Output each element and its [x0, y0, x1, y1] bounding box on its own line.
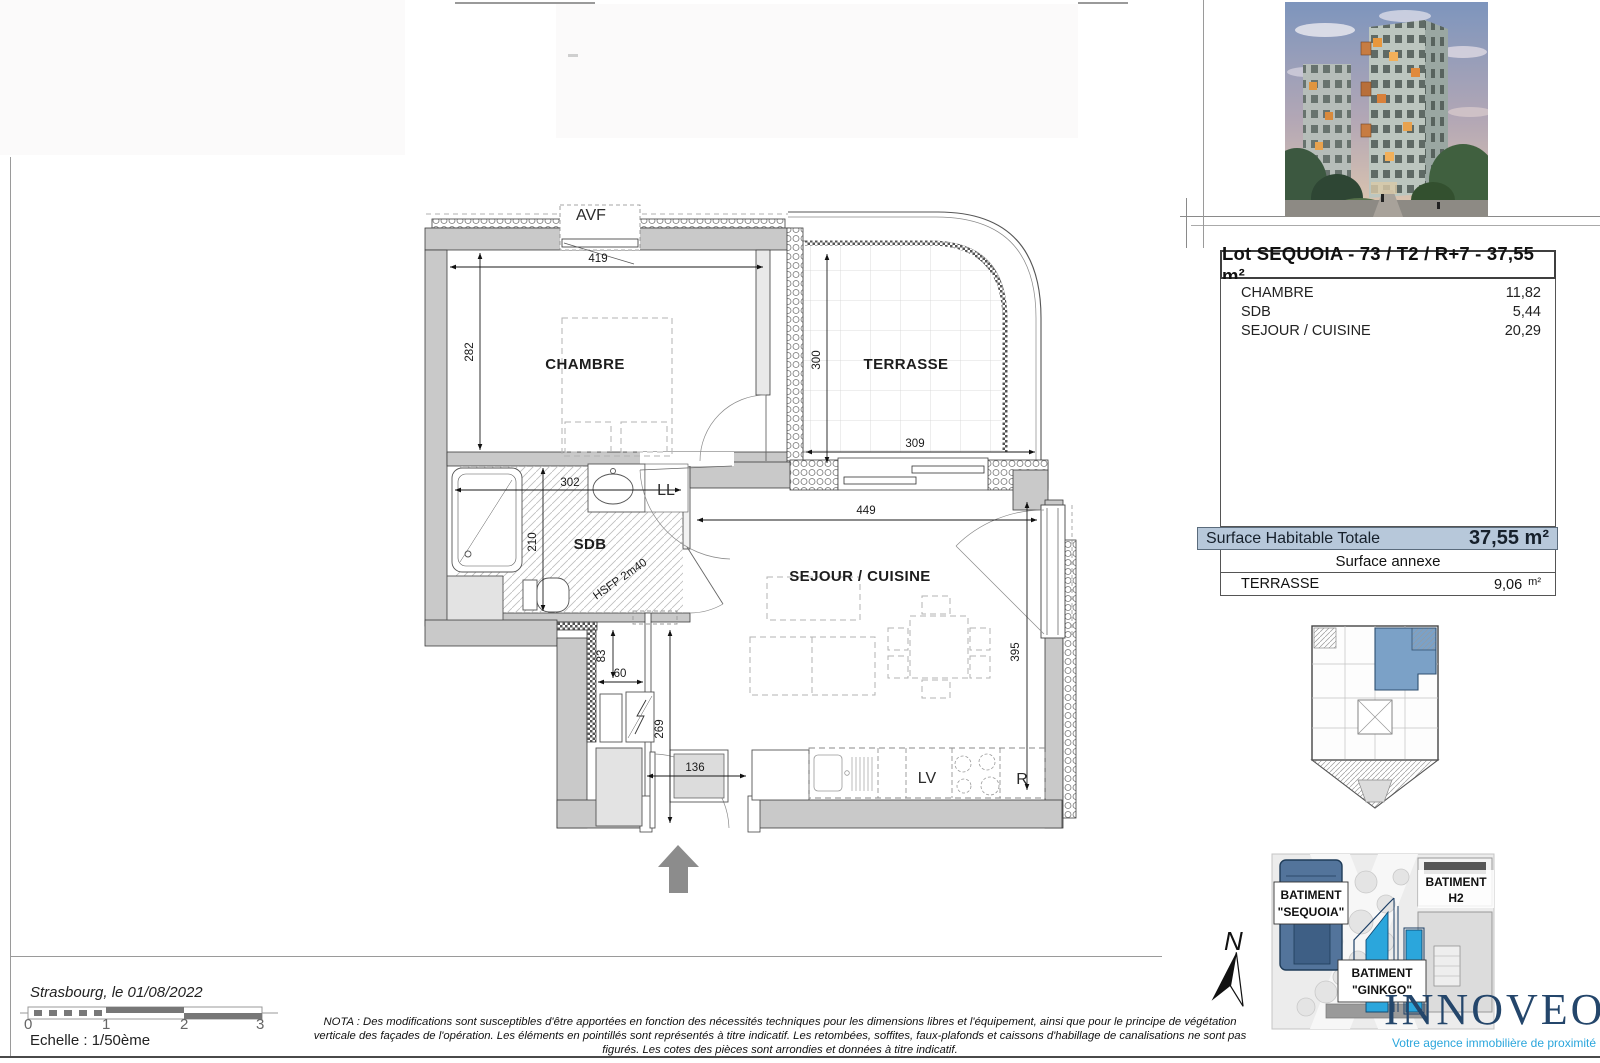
label-batiment-h2-1: BATIMENT	[1425, 875, 1487, 889]
scale-tick-1: 1	[102, 1016, 110, 1033]
label-batiment-h2-2: H2	[1448, 891, 1464, 905]
trim-line	[455, 2, 595, 4]
building-render-photo	[1285, 2, 1488, 217]
kitchen-sink	[814, 755, 842, 791]
room-name: CHAMBRE	[1241, 285, 1314, 301]
north-label: N	[1224, 926, 1243, 956]
date-line: Strasbourg, le 01/08/2022	[30, 984, 203, 1001]
dim-chambre-width: 419	[588, 253, 607, 265]
label-sdb: SDB	[574, 536, 607, 553]
trim-line	[1203, 0, 1204, 248]
label-chambre: CHAMBRE	[545, 356, 624, 373]
room-name: SDB	[1241, 304, 1271, 320]
room-area: 20,29	[1505, 323, 1541, 339]
vanity	[588, 464, 645, 512]
label-fridge: R	[1016, 771, 1028, 788]
total-label: Surface Habitable Totale	[1206, 530, 1380, 548]
dim-sejour-height: 395	[1010, 642, 1022, 661]
label-batiment-ginkgo-1: BATIMENT	[1351, 966, 1413, 980]
sheet-left-rule	[10, 157, 11, 1057]
innoveo-wordmark: INNOVEO	[1384, 984, 1600, 1035]
north-arrow: N	[1202, 922, 1262, 1017]
dim-hall-width: 60	[614, 668, 627, 680]
scale-tick-2: 2	[180, 1016, 188, 1033]
annex-terrasse-row: TERRASSE 9,06m²	[1220, 573, 1556, 596]
label-batiment-sequoia-2: "SEQUOIA"	[1278, 905, 1345, 919]
label-ll: LL	[657, 482, 675, 499]
dim-hall-depth: 83	[596, 650, 608, 663]
trim-line	[1078, 2, 1128, 4]
floor-keyplan	[1300, 612, 1450, 817]
avf-label: AVF	[576, 207, 606, 224]
hob	[955, 754, 999, 795]
scale-bar	[20, 1002, 280, 1024]
terrace-floor	[803, 241, 1007, 452]
sliding-door	[838, 458, 988, 490]
dim-sdb-width: 302	[560, 477, 579, 489]
total-surface-row: Surface Habitable Totale 37,55 m²	[1197, 527, 1558, 550]
dim-sdb-height: 210	[527, 532, 539, 551]
lot-room-list: CHAMBRE 11,82 SDB 5,44 SEJOUR / CUISINE …	[1220, 279, 1556, 527]
total-value: 37,55 m²	[1469, 527, 1549, 550]
floor-plan: AVF HSFP 2m40	[410, 180, 1110, 900]
lot-title: Lot SEQUOIA - 73 / T2 / R+7 - 37,55 m²	[1220, 250, 1556, 279]
technical-shaft	[596, 748, 642, 826]
sejour-window	[956, 505, 1072, 638]
room-area: 5,44	[1513, 304, 1541, 320]
scale-tick-0: 0	[24, 1016, 32, 1033]
dim-hall-height: 269	[654, 719, 666, 738]
dim-terrasse-width: 309	[905, 438, 924, 450]
label-lv: LV	[918, 770, 937, 787]
label-terrasse: TERRASSE	[864, 356, 949, 373]
technical-shaft	[447, 576, 503, 620]
dim-terrasse-height: 300	[811, 350, 823, 369]
room-area: 11,82	[1506, 285, 1541, 301]
table-row: SEJOUR / CUISINE 20,29	[1221, 321, 1555, 340]
innoveo-tagline: Votre agence immobilière de proximité	[1388, 1036, 1600, 1050]
entrance-arrow-icon	[658, 845, 699, 893]
plan-sheet: AVF HSFP 2m40	[0, 0, 1600, 1063]
room-name: SEJOUR / CUISINE	[1241, 323, 1371, 339]
dim-entry-width: 136	[685, 762, 704, 774]
scale-tick-3: 3	[256, 1016, 264, 1033]
dim-chambre-height: 282	[464, 342, 476, 361]
trim-line	[1191, 225, 1600, 226]
nota-text: NOTA : Des modifications sont susceptibl…	[302, 1016, 1258, 1057]
entry-door-leaf	[650, 752, 655, 828]
annex-header: Surface annexe	[1220, 550, 1556, 573]
table-row: CHAMBRE 11,82	[1221, 283, 1555, 302]
table-row: SDB 5,44	[1221, 302, 1555, 321]
kitchen	[670, 748, 1045, 802]
scale-label: Echelle : 1/50ème	[30, 1032, 150, 1049]
drainer	[852, 757, 872, 791]
scan-tint	[556, 4, 1078, 138]
label-sejour: SEJOUR / CUISINE	[789, 568, 930, 585]
dim-sejour-width: 449	[856, 505, 875, 517]
trim-line	[1186, 198, 1187, 248]
annex-room-area: 9,06m²	[1494, 576, 1541, 593]
scan-artifact	[568, 54, 578, 57]
label-batiment-sequoia-1: BATIMENT	[1280, 888, 1342, 902]
scan-tint	[0, 0, 405, 155]
annex-room-name: TERRASSE	[1241, 576, 1319, 592]
footer-top-rule	[10, 956, 1162, 957]
wc	[537, 578, 569, 612]
